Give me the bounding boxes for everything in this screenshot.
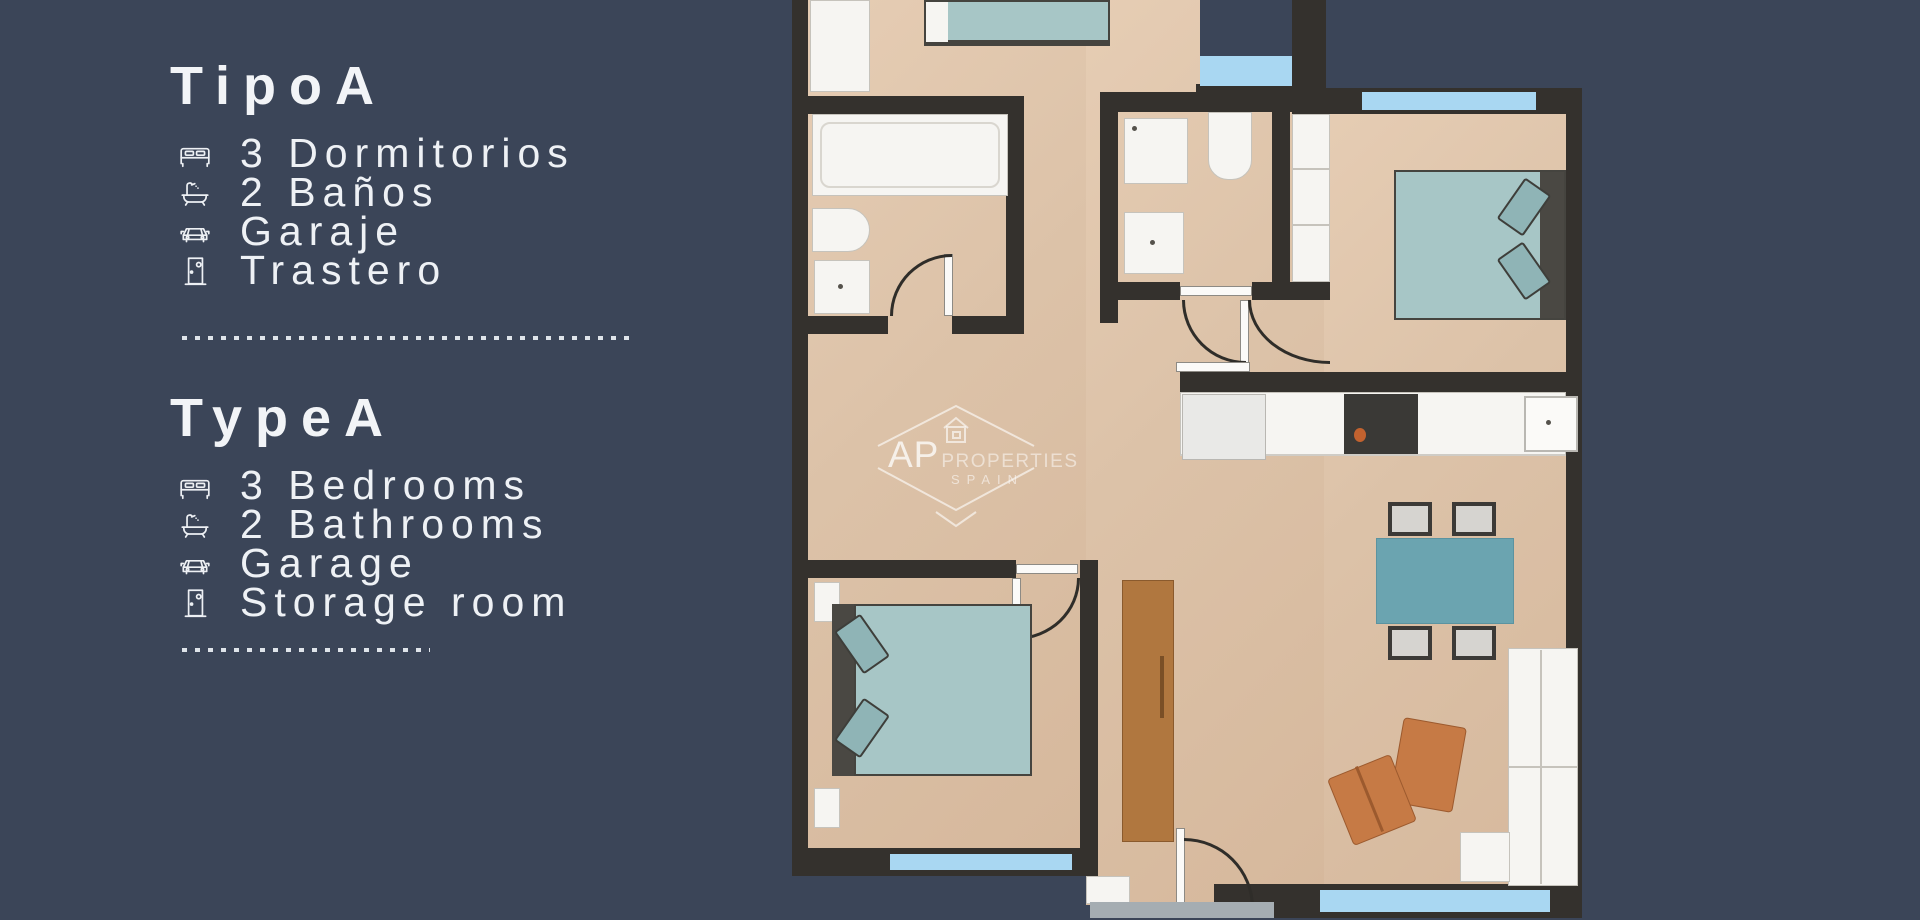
title-es: TipoA (170, 58, 760, 114)
brand-watermark: AP PROPERTIES SPAIN (872, 394, 1040, 534)
entry-porch (1090, 902, 1274, 918)
side-table (1460, 832, 1510, 882)
flyer-canvas: TipoA 3 Dormitorios 2 Baños (0, 0, 1920, 920)
hall-wardrobe-wood (1122, 580, 1174, 842)
feature-label: Trastero (240, 251, 447, 290)
wardrobe-top-room (810, 0, 870, 92)
watermark-country: SPAIN (872, 472, 1024, 487)
dotted-divider-short (182, 648, 430, 652)
wardrobe-bedroom2 (1292, 114, 1330, 282)
watermark-brand: AP (888, 434, 939, 476)
watermark-brand-secondary: PROPERTIES (941, 451, 1078, 473)
kitchen-cooktop (1344, 394, 1418, 454)
sink-faucet (1546, 420, 1551, 425)
shower-drain (1132, 126, 1137, 131)
wall-kitchen (1180, 372, 1582, 392)
feature-label: 3 Bedrooms (240, 466, 531, 505)
feature-label: Garage (240, 544, 419, 583)
toilet-bath1 (812, 208, 870, 252)
feature-list-es: 3 Dormitorios 2 Baños Garaje (176, 134, 760, 290)
entry-step (1086, 876, 1130, 904)
bed-icon (176, 135, 214, 173)
wall-bath1-bottom-right (952, 316, 1024, 334)
feature-list-en: 3 Bedrooms 2 Bathrooms Garage (176, 466, 760, 622)
wall-bath1-top (808, 96, 1024, 114)
feature-bathrooms-es: 2 Baños (176, 173, 760, 212)
wall-bath1-right (1006, 96, 1024, 334)
section-spanish: TipoA 3 Dormitorios 2 Baños (140, 58, 760, 290)
wardrobe2-shelf-line2 (1292, 224, 1330, 226)
feature-label: Storage room (240, 583, 572, 622)
feature-label: 3 Dormitorios (240, 134, 575, 173)
car-icon (176, 213, 214, 251)
window-bedroom3 (890, 854, 1072, 870)
dining-chair-2 (1452, 502, 1496, 536)
window-living (1320, 890, 1550, 912)
bathtub-inner (820, 122, 1000, 188)
wall-bedroom3-right (1080, 560, 1098, 876)
toilet-bath2 (1208, 112, 1252, 180)
hall-wardrobe-handle (1160, 656, 1164, 718)
info-panel: TipoA 3 Dormitorios 2 Baños (140, 58, 760, 652)
feature-label: 2 Baños (240, 173, 439, 212)
wardrobe2-shelf-line (1292, 168, 1330, 170)
window-bedroom2 (1362, 92, 1536, 110)
door-sill-bedroom3 (1016, 564, 1078, 574)
door-icon (176, 584, 214, 622)
feature-bedrooms-en: 3 Bedrooms (176, 466, 760, 505)
wall-top-right-stub (1292, 0, 1326, 114)
door-leaf-bedroom2 (1176, 362, 1250, 372)
dining-chair-3 (1388, 626, 1432, 660)
title-en: TypeA (170, 390, 760, 446)
feature-storage-en: Storage room (176, 583, 760, 622)
feature-garage-en: Garage (176, 544, 760, 583)
feature-storage-es: Trastero (176, 251, 760, 290)
feature-garage-es: Garaje (176, 212, 760, 251)
section-english: TypeA 3 Bedrooms 2 Bathrooms (140, 390, 760, 622)
wall-bedroom3-top (808, 560, 1016, 578)
wall-bath1-bottom-left (808, 316, 888, 334)
cooktop-knob (1354, 428, 1366, 442)
door-icon (176, 252, 214, 290)
wall-outer-left (792, 0, 808, 876)
watermark-brand-row: AP PROPERTIES (888, 434, 1040, 476)
bed-top-room (924, 0, 1110, 46)
wall-bath2-left (1100, 92, 1118, 323)
feature-bedrooms-es: 3 Dormitorios (176, 134, 760, 173)
sofa-back-line (1540, 650, 1542, 884)
wall-bath2-right (1272, 92, 1290, 300)
kitchen-sink (1524, 396, 1578, 452)
dining-chair-1 (1388, 502, 1432, 536)
nightstand-bedroom3-b (814, 788, 840, 828)
bathtub-icon (176, 174, 214, 212)
car-icon (176, 545, 214, 583)
bed-bedroom3 (854, 604, 1032, 776)
feature-label: 2 Bathrooms (240, 505, 549, 544)
kitchen-fridge (1182, 394, 1266, 460)
door-sill-bath2 (1180, 286, 1252, 296)
feature-label: Garaje (240, 212, 405, 251)
bathtub-icon (176, 506, 214, 544)
sofa-cushion-line (1508, 766, 1578, 768)
feature-bathrooms-en: 2 Bathrooms (176, 505, 760, 544)
wall-bath2-bottom (1118, 282, 1180, 300)
window-hall-top (1200, 56, 1292, 86)
basin-dot-2 (1150, 240, 1155, 245)
dining-table (1376, 538, 1514, 624)
wall-bedroom2-bottom-left (1252, 282, 1330, 300)
basin-dot-1 (838, 284, 843, 289)
dining-chair-4 (1452, 626, 1496, 660)
bed-top-sheet (926, 2, 948, 42)
bed-icon (176, 467, 214, 505)
floor-plan: AP PROPERTIES SPAIN (784, 0, 1604, 920)
